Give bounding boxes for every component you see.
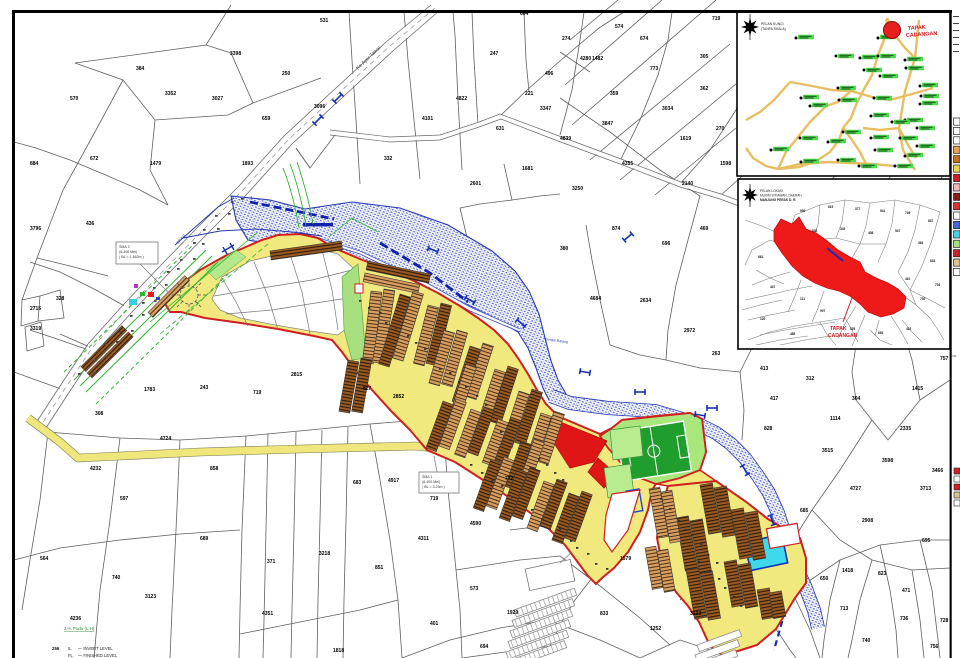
svg-text:740: 740: [862, 638, 871, 644]
svg-text:— INVERT LEVEL: — INVERT LEVEL: [78, 646, 113, 651]
svg-text:SMA 2: SMA 2: [119, 245, 130, 249]
svg-text:1598: 1598: [720, 161, 731, 167]
svg-text:683: 683: [353, 480, 362, 486]
svg-text:270: 270: [716, 126, 725, 132]
svg-text:930: 930: [800, 209, 806, 213]
svg-text:694: 694: [480, 644, 489, 650]
svg-text:573: 573: [470, 586, 479, 592]
svg-text:564: 564: [40, 556, 49, 562]
svg-text:757: 757: [940, 356, 949, 362]
svg-text:417: 417: [770, 396, 779, 402]
svg-text:( BL = 3.23m ): ( BL = 3.23m ): [422, 485, 445, 489]
svg-text:3123: 3123: [145, 594, 156, 600]
svg-text:3034: 3034: [662, 106, 673, 112]
svg-text:541: 541: [880, 209, 886, 213]
svg-text:111: 111: [800, 297, 805, 301]
svg-text:384: 384: [136, 66, 145, 72]
svg-text:631: 631: [496, 126, 505, 132]
svg-text:837: 837: [928, 219, 934, 223]
svg-text:4727: 4727: [850, 486, 861, 492]
svg-text:364: 364: [918, 241, 924, 245]
svg-text:PELAN KUNCI: PELAN KUNCI: [761, 22, 784, 26]
svg-text:719: 719: [430, 496, 439, 502]
svg-text:719: 719: [712, 16, 721, 22]
svg-text:1893: 1893: [242, 161, 253, 167]
svg-text:422: 422: [906, 327, 912, 331]
svg-text:3352: 3352: [165, 91, 176, 97]
svg-text:305: 305: [700, 54, 709, 60]
svg-text:597: 597: [120, 496, 129, 502]
svg-text:736: 736: [900, 616, 909, 622]
svg-text:2601: 2601: [470, 181, 481, 187]
svg-text:730: 730: [920, 297, 926, 301]
svg-text:4355: 4355: [622, 161, 633, 167]
svg-text:719: 719: [253, 390, 262, 396]
svg-text:4280: 4280: [580, 56, 591, 62]
svg-text:685: 685: [800, 508, 809, 514]
svg-text:FL: FL: [68, 653, 74, 658]
svg-text:MUKIM SITIAWAN, DAERAH: MUKIM SITIAWAN, DAERAH: [760, 194, 802, 198]
svg-text:728: 728: [940, 618, 949, 624]
svg-text:833: 833: [600, 611, 609, 617]
svg-text:PELAN LOKASI: PELAN LOKASI: [760, 189, 783, 193]
svg-text:J.H. Pudu (L.H): J.H. Pudu (L.H): [64, 626, 95, 631]
svg-text:3598: 3598: [882, 458, 893, 464]
svg-text:3218: 3218: [319, 551, 330, 557]
svg-text:4232: 4232: [90, 466, 101, 472]
svg-text:274: 274: [562, 36, 571, 42]
svg-text:4822: 4822: [456, 96, 467, 102]
svg-text:4839: 4839: [560, 136, 571, 142]
svg-text:1482: 1482: [592, 56, 603, 62]
svg-text:2908: 2908: [862, 518, 873, 524]
svg-text:3466: 3466: [932, 468, 943, 474]
svg-text:410: 410: [905, 277, 911, 281]
svg-text:3123: 3123: [690, 611, 701, 617]
svg-text:884: 884: [30, 161, 39, 167]
svg-text:858: 858: [210, 466, 219, 472]
svg-text:359: 359: [610, 91, 619, 97]
svg-text:1479: 1479: [150, 161, 161, 167]
svg-text:2972: 2972: [684, 328, 695, 334]
svg-text:2335: 2335: [900, 426, 911, 432]
svg-text:308: 308: [95, 411, 104, 417]
svg-text:243: 243: [200, 385, 209, 391]
svg-text:3713: 3713: [920, 486, 931, 492]
svg-text:3319: 3319: [30, 326, 41, 332]
svg-text:485: 485: [790, 332, 796, 336]
svg-text:371: 371: [267, 559, 276, 565]
svg-text:MANJUNG PERAK D. R.: MANJUNG PERAK D. R.: [760, 198, 796, 202]
svg-text:4101: 4101: [422, 116, 433, 122]
svg-text:4351: 4351: [262, 611, 273, 617]
svg-text:3796: 3796: [30, 226, 41, 232]
svg-text:661: 661: [758, 255, 764, 259]
svg-text:SMA 1: SMA 1: [422, 475, 433, 479]
svg-text:304: 304: [852, 396, 861, 402]
svg-text:1818: 1818: [333, 648, 344, 654]
svg-text:2716: 2716: [30, 306, 41, 312]
svg-text:828: 828: [764, 426, 773, 432]
svg-text:1418: 1418: [842, 568, 853, 574]
svg-text:436: 436: [86, 221, 95, 227]
svg-text:469: 469: [700, 226, 709, 232]
svg-text:756: 756: [930, 644, 939, 650]
svg-text:3250: 3250: [572, 186, 583, 192]
svg-text:2140: 2140: [682, 181, 693, 187]
svg-text:740: 740: [112, 575, 121, 581]
svg-text:328: 328: [56, 296, 65, 302]
svg-text:1114: 1114: [830, 416, 841, 422]
svg-text:3398: 3398: [230, 51, 241, 57]
svg-text:TAPAK: TAPAK: [830, 326, 847, 332]
svg-text:696: 696: [662, 241, 671, 247]
svg-text:401: 401: [430, 621, 439, 627]
svg-text:496: 496: [545, 71, 554, 77]
svg-text:674: 674: [640, 36, 649, 42]
svg-text:3847: 3847: [602, 121, 613, 127]
svg-text:3027: 3027: [212, 96, 223, 102]
svg-text:4684: 4684: [590, 296, 601, 302]
svg-text:689: 689: [200, 536, 209, 542]
svg-text:332: 332: [384, 156, 393, 162]
svg-text:1681: 1681: [522, 166, 533, 172]
svg-text:703: 703: [935, 283, 941, 287]
svg-text:3515: 3515: [822, 448, 833, 454]
svg-text:827: 827: [363, 386, 372, 392]
svg-text:907: 907: [820, 309, 826, 313]
svg-text:(6,400 Mel): (6,400 Mel): [422, 480, 440, 484]
svg-text:— FINISHED LEVEL: — FINISHED LEVEL: [78, 653, 118, 658]
svg-text:4917: 4917: [388, 478, 399, 484]
svg-text:659: 659: [262, 116, 271, 122]
svg-text:362: 362: [700, 86, 709, 92]
svg-text:832: 832: [812, 229, 818, 233]
svg-text:1252: 1252: [650, 626, 661, 632]
svg-text:772: 772: [505, 476, 514, 482]
svg-text:672: 672: [90, 156, 99, 162]
svg-text:4236: 4236: [70, 616, 81, 622]
svg-text:(TANPA SKALA): (TANPA SKALA): [761, 27, 786, 31]
svg-text:(6,406 Mel): (6,406 Mel): [119, 250, 137, 254]
svg-text:2852: 2852: [393, 394, 404, 400]
svg-text:343: 343: [840, 227, 846, 231]
svg-text:471: 471: [902, 588, 911, 594]
svg-text:250: 250: [282, 71, 291, 77]
svg-text:4311: 4311: [418, 536, 429, 542]
svg-text:256: 256: [52, 646, 60, 651]
svg-text:1415: 1415: [912, 386, 923, 392]
svg-text:1579: 1579: [620, 556, 631, 562]
svg-text:574: 574: [615, 24, 624, 30]
svg-text:874: 874: [612, 226, 621, 232]
svg-text:633: 633: [930, 259, 936, 263]
svg-text:4724: 4724: [160, 436, 171, 442]
svg-text:1783: 1783: [144, 387, 155, 393]
svg-text:1929: 1929: [507, 610, 518, 616]
svg-text:823: 823: [878, 571, 887, 577]
svg-text:4590: 4590: [470, 521, 481, 527]
svg-text:312: 312: [806, 376, 815, 382]
svg-text:3096: 3096: [314, 104, 325, 110]
svg-text:221: 221: [525, 91, 534, 97]
svg-text:525: 525: [850, 327, 856, 331]
svg-text:247: 247: [490, 51, 499, 57]
svg-text:619: 619: [828, 205, 834, 209]
svg-text:2815: 2815: [291, 372, 302, 378]
svg-text:547: 547: [895, 229, 901, 233]
svg-text:570: 570: [70, 96, 79, 102]
svg-text:749: 749: [905, 211, 911, 215]
svg-text:377: 377: [855, 207, 861, 211]
svg-text:3347: 3347: [540, 106, 551, 112]
svg-text:( BL = 1.462m ): ( BL = 1.462m ): [119, 255, 144, 259]
svg-text:120: 120: [760, 317, 766, 321]
svg-text:693: 693: [878, 331, 884, 335]
svg-text:380: 380: [560, 246, 569, 252]
svg-text:650: 650: [820, 576, 829, 582]
svg-text:CADANGAN: CADANGAN: [828, 333, 858, 339]
svg-text:263: 263: [712, 351, 721, 357]
svg-text:408: 408: [868, 231, 874, 235]
svg-text:2634: 2634: [640, 298, 651, 304]
svg-text:851: 851: [375, 565, 384, 571]
svg-text:413: 413: [760, 366, 769, 372]
svg-text:1619: 1619: [680, 136, 691, 142]
svg-text:773: 773: [650, 66, 659, 72]
svg-text:713: 713: [840, 606, 849, 612]
svg-text:695: 695: [922, 538, 931, 544]
svg-text:531: 531: [320, 18, 329, 24]
svg-text:447: 447: [770, 285, 776, 289]
svg-text:PE: PE: [953, 354, 957, 358]
